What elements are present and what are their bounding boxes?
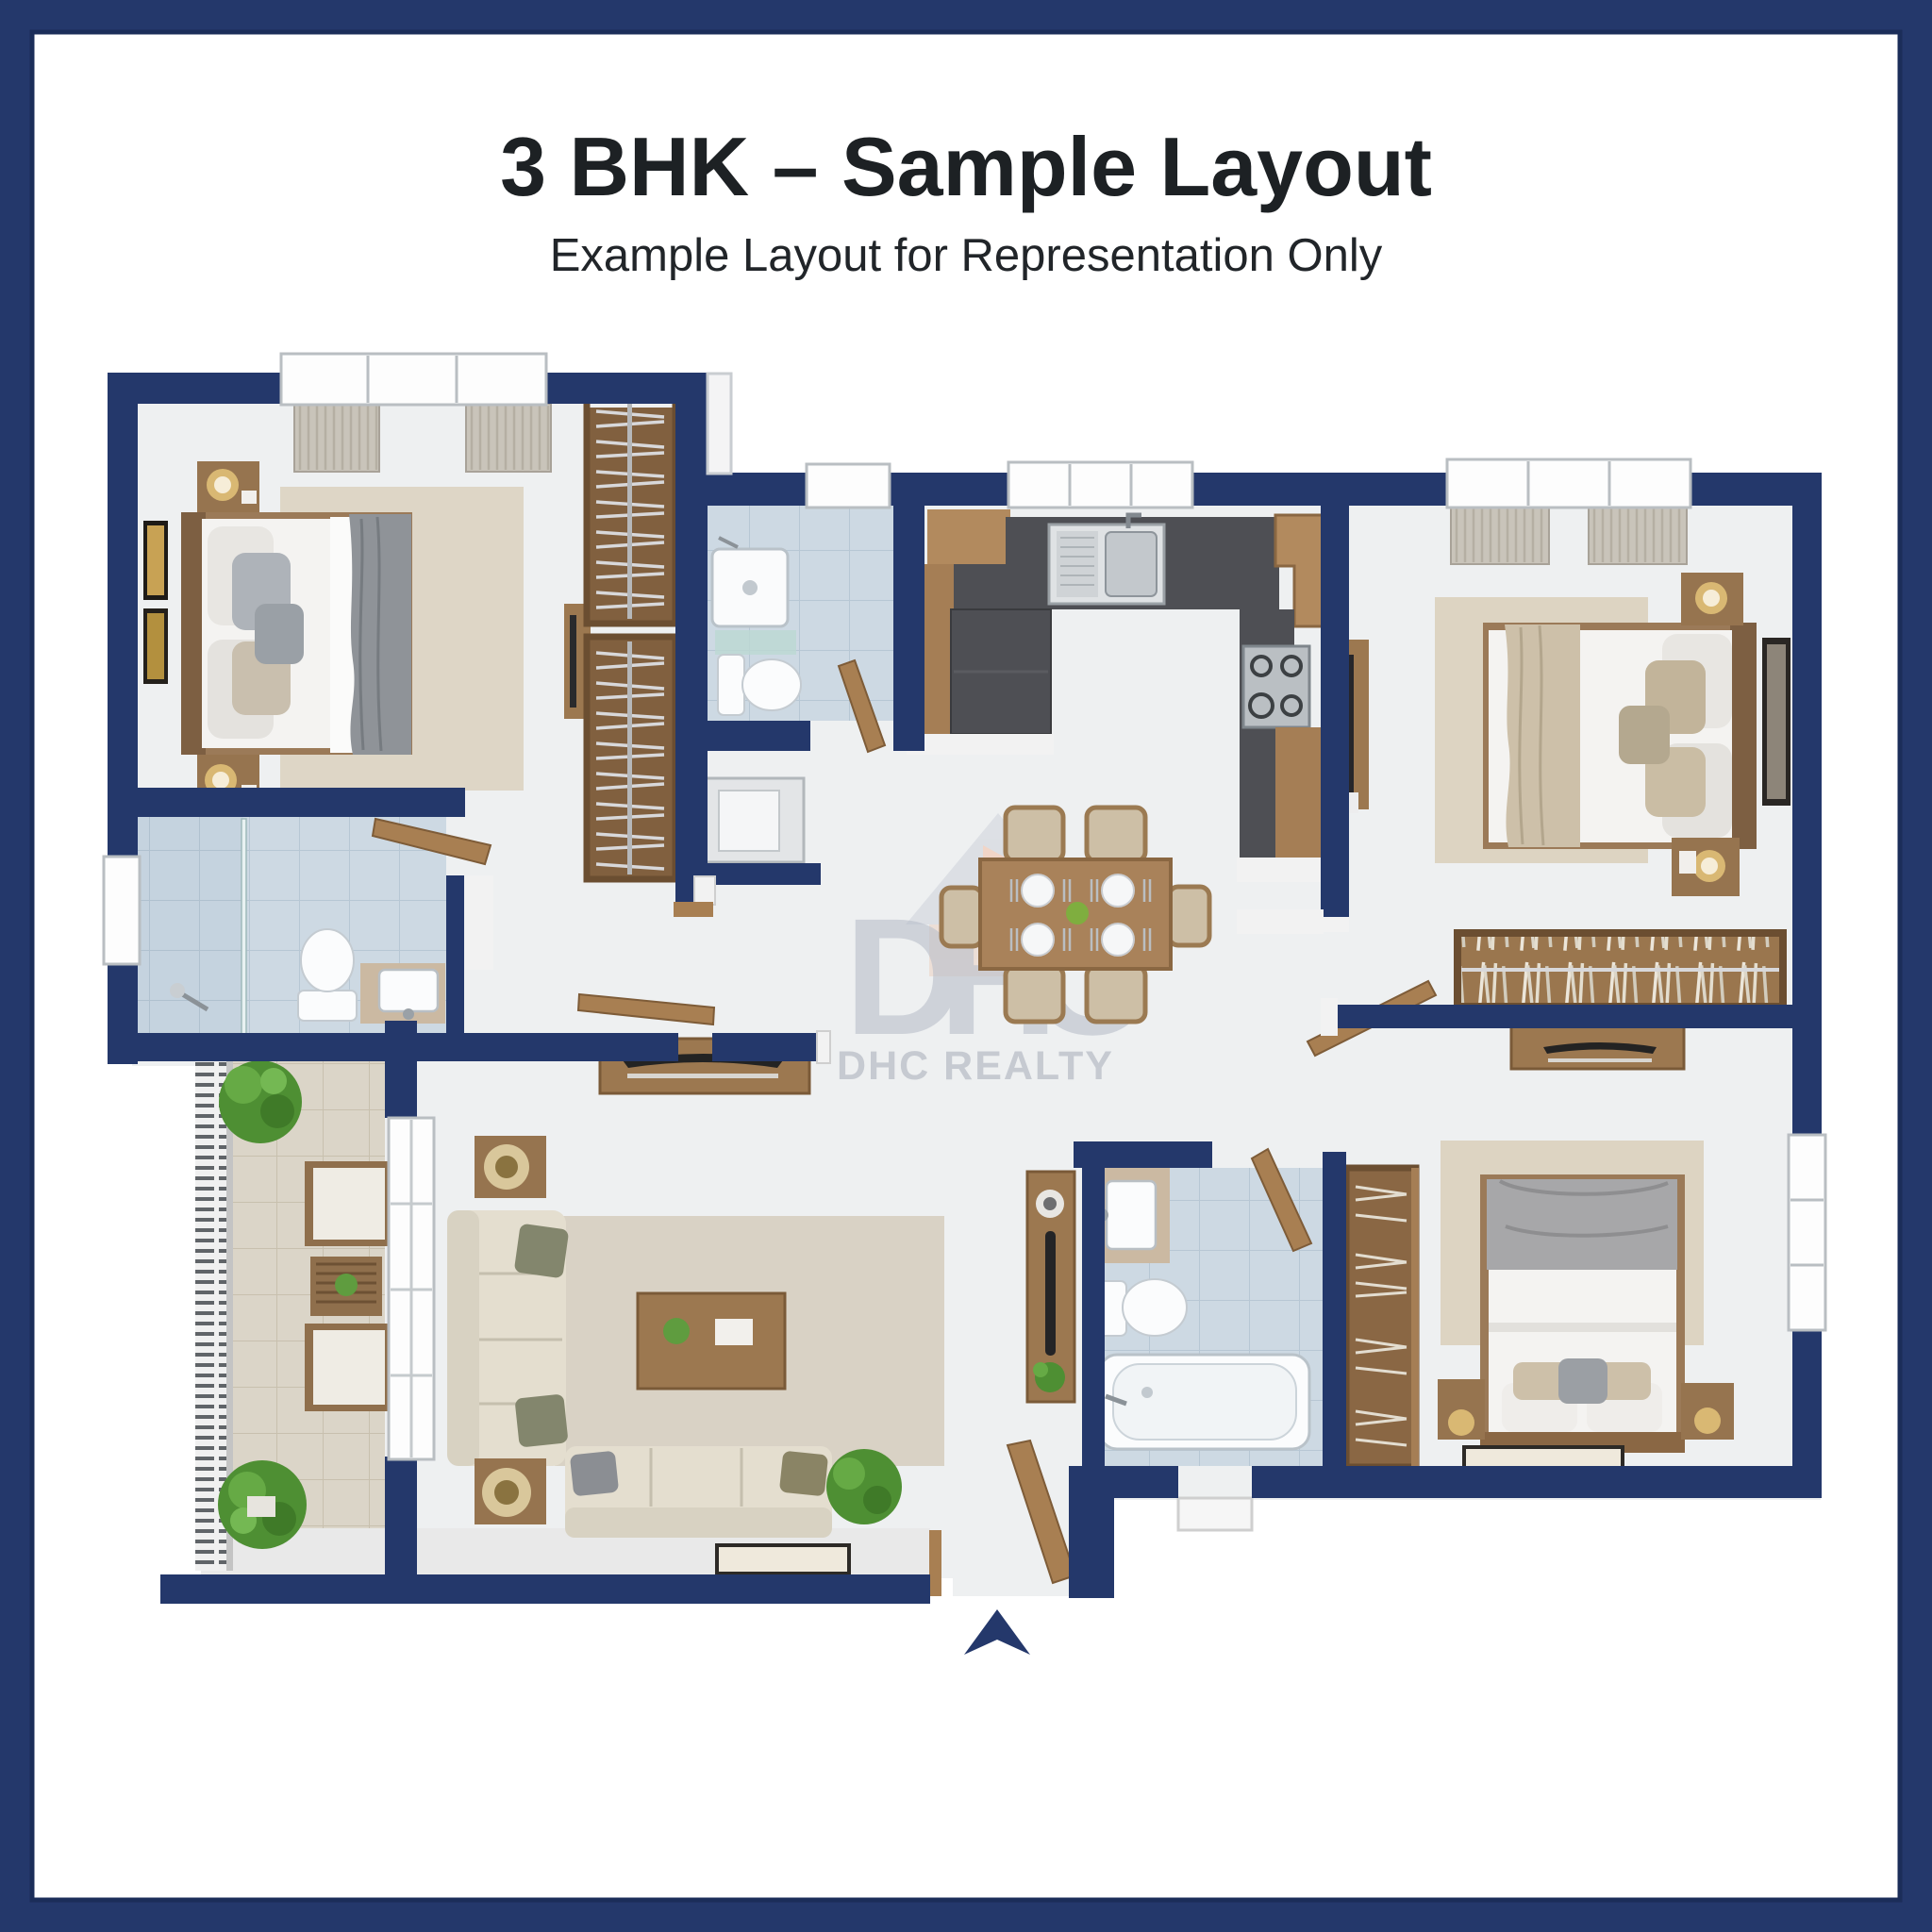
- svg-text:DHC REALTY: DHC REALTY: [837, 1043, 1114, 1089]
- svg-text:3 BHK – Sample Layout: 3 BHK – Sample Layout: [500, 120, 1432, 213]
- svg-text:Example Layout for Representat: Example Layout for Representation Only: [550, 230, 1383, 281]
